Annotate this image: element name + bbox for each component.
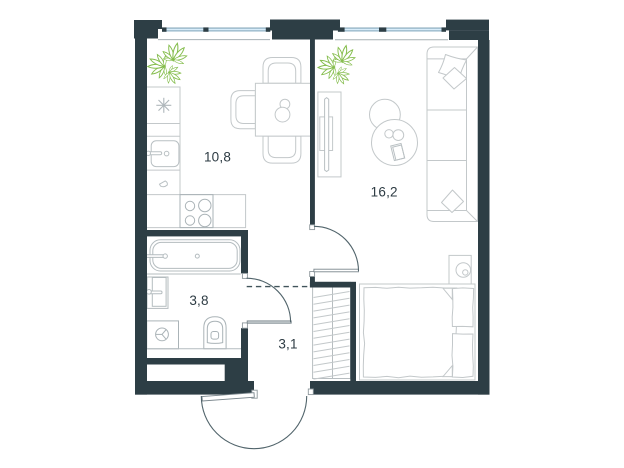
- svg-text:10,8: 10,8: [204, 150, 231, 165]
- svg-text:3,1: 3,1: [278, 337, 297, 352]
- svg-text:16,2: 16,2: [371, 184, 398, 199]
- svg-text:3,8: 3,8: [189, 293, 208, 308]
